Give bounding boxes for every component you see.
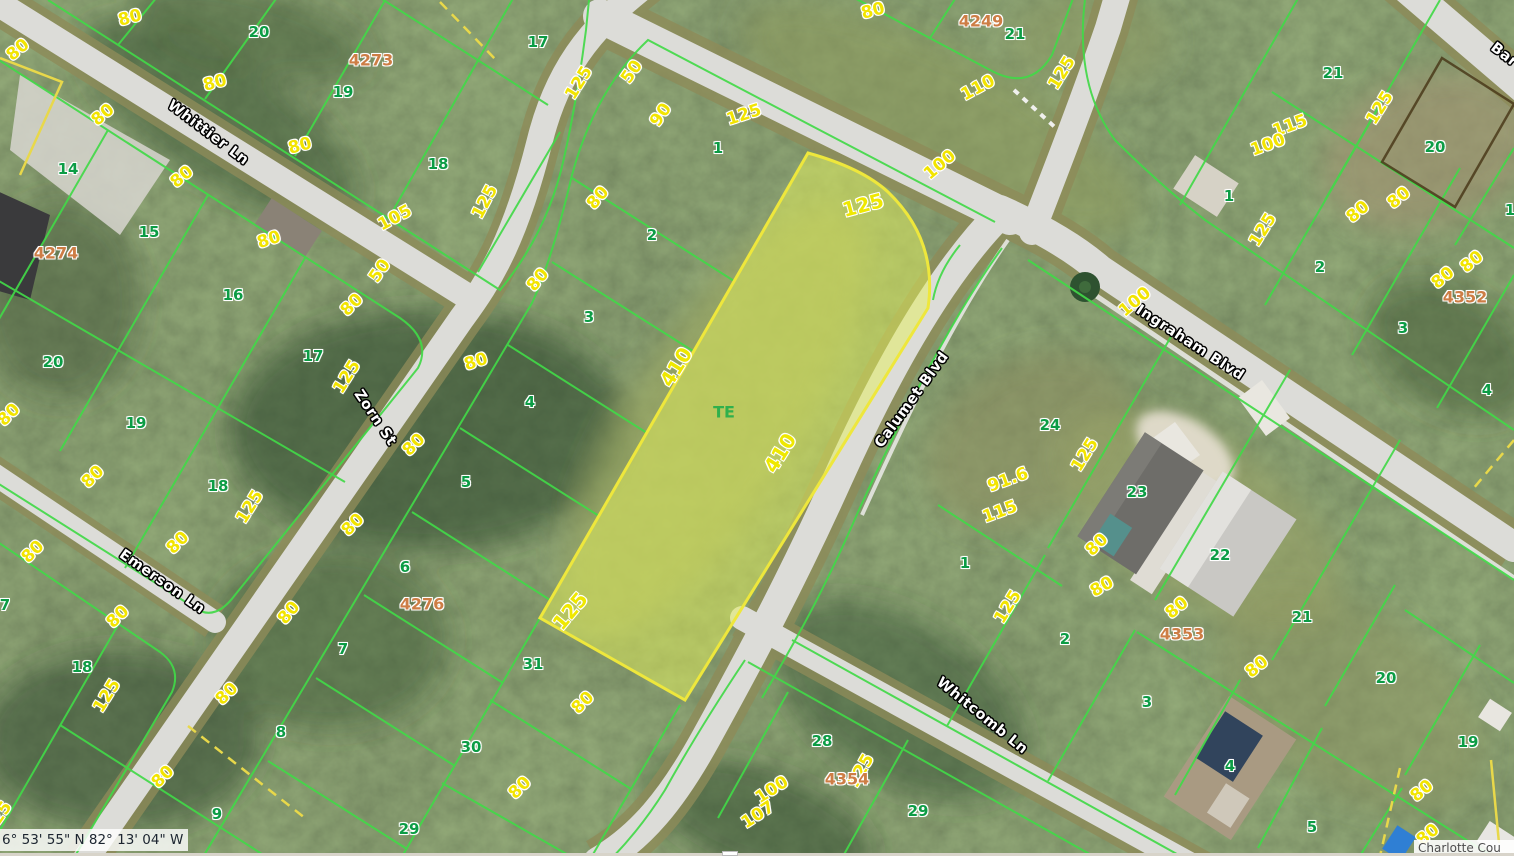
lot-number: 1	[960, 554, 970, 572]
lot-number: 1	[1505, 201, 1514, 219]
lot-number: 4	[1225, 757, 1235, 775]
lot-number: 15	[139, 223, 160, 241]
dimension-label: 125	[232, 487, 268, 528]
dimension-label: 107	[738, 797, 779, 833]
lot-number: 20	[43, 353, 64, 371]
highlighted-parcel-label: TE	[713, 403, 735, 422]
dimension-label: 80	[1457, 247, 1488, 278]
dimension-label: 80	[167, 162, 198, 193]
street-label: Ingraham Blvd	[1133, 302, 1247, 384]
highlight-dimension-label: 125	[547, 587, 592, 634]
lot-number: 23	[1127, 483, 1148, 501]
dimension-label: 125	[561, 63, 597, 104]
dimension-label: 100	[920, 146, 960, 184]
lot-number: 6	[400, 558, 410, 576]
dimension-label: 91.6	[985, 463, 1031, 496]
lot-number: 29	[399, 820, 420, 838]
dimension-label: 80	[1407, 776, 1438, 807]
map-viewer[interactable]: Whittier LnZorn StEmerson LnCalumet Blvd…	[0, 0, 1514, 856]
dimension-label: 80	[0, 400, 24, 431]
dimension-label: 125	[89, 676, 125, 717]
dimension-label: 105	[375, 201, 416, 235]
lot-number: 7	[0, 596, 10, 614]
coordinate-text: 6° 53' 55" N 82° 13' 04" W	[2, 832, 183, 848]
dimension-label: 80	[3, 35, 34, 66]
dimension-label: 80	[583, 183, 614, 214]
dimension-label: 100	[1115, 283, 1155, 321]
dimension-label: 80	[1082, 530, 1113, 561]
street-label: Calumet Blvd	[872, 349, 952, 451]
dimension-label: 80	[505, 773, 536, 804]
block-number: 4249	[959, 12, 1004, 31]
lot-number: 7	[338, 640, 348, 658]
dimension-label: 80	[462, 349, 491, 375]
lot-number: 19	[126, 414, 147, 432]
block-number: 4274	[34, 244, 79, 263]
dimension-label: 125	[1245, 210, 1281, 251]
dimension-label: 125	[724, 100, 764, 130]
dimension-label: 80	[337, 290, 368, 321]
highlight-dimension-label: 125	[840, 188, 887, 222]
lot-number: 20	[1425, 138, 1446, 156]
lot-number: 5	[1307, 818, 1317, 836]
lot-number: 17	[528, 33, 549, 51]
map-labels-layer: Whittier LnZorn StEmerson LnCalumet Blvd…	[0, 0, 1514, 856]
dimension-label: 90	[646, 100, 676, 131]
lot-number: 3	[1142, 693, 1152, 711]
lot-number: 4	[1482, 381, 1492, 399]
lot-number: 21	[1292, 608, 1313, 626]
dimension-label: 100	[752, 772, 793, 808]
dimension-label: 125	[843, 751, 878, 792]
lot-number: 4	[525, 393, 535, 411]
dimension-label: 80	[338, 510, 369, 541]
lot-number: 21	[1323, 64, 1344, 82]
lot-number: 8	[276, 723, 286, 741]
dimension-label: 80	[274, 598, 305, 629]
dimension-label: 80	[163, 528, 194, 559]
lot-number: 22	[1210, 546, 1231, 564]
dimension-label: 80	[212, 679, 243, 710]
lot-number: 16	[223, 286, 244, 304]
lot-number: 2	[647, 226, 657, 244]
dimension-label: 125	[1362, 88, 1398, 129]
lot-number: 18	[208, 477, 229, 495]
dimension-label: 80	[1384, 183, 1415, 214]
street-label: Whitcomb Ln	[933, 674, 1030, 757]
coordinate-readout: 6° 53' 55" N 82° 13' 04" W	[0, 829, 188, 851]
lot-number: 1	[713, 139, 723, 157]
highlight-dimension-label: 410	[655, 343, 697, 391]
lot-number: 9	[212, 805, 222, 823]
street-label: Zorn St	[351, 387, 400, 449]
dimension-label: 125	[1044, 53, 1080, 94]
dimension-label: 50	[365, 256, 395, 287]
dimension-label: 125	[990, 587, 1026, 628]
block-number: 4273	[349, 51, 394, 70]
lot-number: 30	[461, 738, 482, 756]
dimension-label: 80	[568, 688, 599, 719]
dimension-label: 80	[116, 5, 144, 30]
dimension-label: 110	[958, 71, 999, 105]
lot-number: 20	[1376, 669, 1397, 687]
lot-number: 31	[523, 655, 544, 673]
dimension-label: 100	[1248, 130, 1288, 161]
dimension-label: 80	[18, 537, 49, 568]
lot-number: 1	[1224, 187, 1234, 205]
lot-number: 24	[1040, 416, 1061, 434]
lot-number: 17	[303, 347, 324, 365]
dimension-label: 80	[88, 100, 119, 131]
lot-number: 3	[584, 308, 594, 326]
lot-number: 19	[1458, 733, 1479, 751]
dimension-label: 115	[980, 497, 1020, 528]
lot-number: 19	[333, 83, 354, 101]
dimension-label: 80	[78, 462, 109, 493]
dimension-label: 115	[1270, 111, 1310, 142]
dimension-label: 80	[859, 0, 887, 24]
street-label: Whittier Ln	[164, 97, 251, 168]
dimension-label: 80	[103, 602, 134, 633]
dimension-label: 125	[1067, 435, 1103, 476]
dimension-label: 80	[1162, 593, 1193, 624]
block-number: 4352	[1443, 288, 1488, 307]
lot-number: 2	[1315, 258, 1325, 276]
dimension-label: 50	[617, 57, 647, 88]
lot-number: 18	[72, 658, 93, 676]
dimension-label: 80	[1343, 197, 1374, 228]
dimension-label: 80	[286, 133, 314, 158]
lot-number: 21	[1005, 25, 1026, 43]
dimension-label: 80	[1428, 263, 1459, 294]
street-label: Emerson Ln	[116, 547, 208, 618]
lot-number: 5	[461, 473, 471, 491]
dimension-label: 80	[399, 430, 430, 461]
dimension-label: 125	[468, 182, 502, 223]
highlight-dimension-label: 410	[759, 429, 801, 477]
dimension-label: 125	[329, 357, 365, 398]
block-number: 4353	[1160, 625, 1205, 644]
dimension-label: 80	[201, 70, 229, 95]
dimension-label: 80	[523, 265, 554, 296]
lot-number: 3	[1398, 319, 1408, 337]
lot-number: 20	[249, 23, 270, 41]
lot-number: 14	[58, 160, 79, 178]
lot-number: 2	[1060, 630, 1070, 648]
lot-number: 28	[812, 732, 833, 750]
block-number: 4354	[825, 770, 870, 789]
block-number: 4276	[400, 595, 445, 614]
street-label: Bar	[1487, 40, 1514, 71]
attribution-logo-box	[722, 851, 738, 856]
dimension-label: 80	[1087, 572, 1118, 601]
dimension-label: 80	[1242, 652, 1273, 683]
lot-number: 18	[428, 155, 449, 173]
dimension-label: 80	[148, 762, 179, 793]
dimension-label: 80	[255, 227, 284, 253]
lot-number: 29	[908, 802, 929, 820]
